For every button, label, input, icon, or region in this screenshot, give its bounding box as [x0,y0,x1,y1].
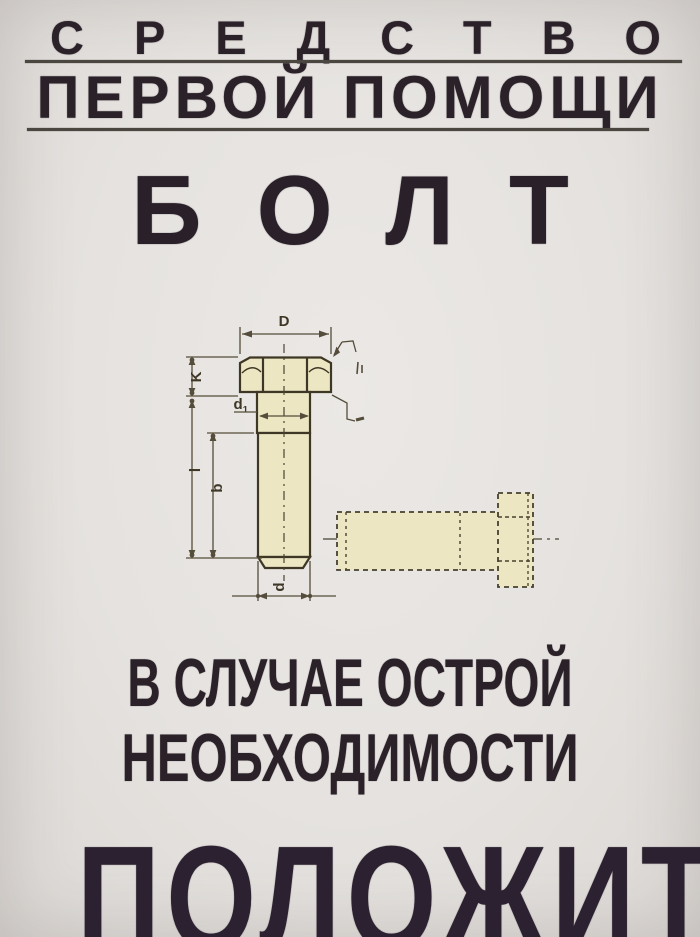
vertical-bolt-view [240,344,331,581]
dimension-D-arrow-left [242,331,252,338]
action-word: ПОЛОЖИТЬ [77,825,623,937]
subtitle-line-2: НЕОБХОДИМОСТИ [98,724,602,792]
bolt-head [240,358,331,393]
chamfer-callout-lower-leader [332,395,355,421]
dimension-l: l [186,399,262,558]
header-line-1: СРЕДСТВО [0,14,700,61]
dimension-d-arrow-left [258,593,267,600]
dimension-b-arrow-top [210,433,217,441]
dimension-K: K [186,357,238,396]
subtitle-line-1: В СЛУЧАЕ ОСТРОЙ [112,649,588,717]
dimension-d-arrow-right [301,593,310,600]
dimension-label-D: D [279,313,290,330]
dimension-b-arrow-bottom [210,550,217,558]
chamfer-callout-upper-elbow [342,341,356,352]
h-bolt-shank [337,512,499,570]
dimension-D: D [240,313,331,354]
poster-background: СРЕДСТВО ПЕРВОЙ ПОМОЩИ БОЛТ [0,0,700,937]
bolt-title: БОЛТ [0,161,700,259]
dimension-label-d: d [271,582,288,591]
dimension-label-l: l [187,468,204,472]
dimension-b: b [207,433,254,558]
dimension-l-arrow-bottom [189,550,196,558]
chamfer-callout-upper [333,341,362,374]
dimension-K-arrow-top [189,357,196,365]
bolt-technical-drawing: D K l [150,300,570,620]
dimension-label-d1-base: d [234,396,243,413]
horizontal-bolt-view [323,493,559,587]
dimension-D-arrow-right [319,331,329,338]
header-line-2: ПЕРВОЙ ПОМОЩИ [0,68,700,128]
dimension-label-K: K [188,371,205,382]
header-underline-2 [27,128,649,131]
dimension-K-arrow-bottom [189,388,196,396]
dimension-label-d1-subscript: 1 [243,405,249,416]
chamfer-annotation-mark [357,362,362,374]
chamfer-callout-lower-tick [356,418,364,420]
header-underline-1 [25,60,682,63]
chamfer-callout-lower [332,395,364,421]
dimension-label-b: b [209,483,226,492]
